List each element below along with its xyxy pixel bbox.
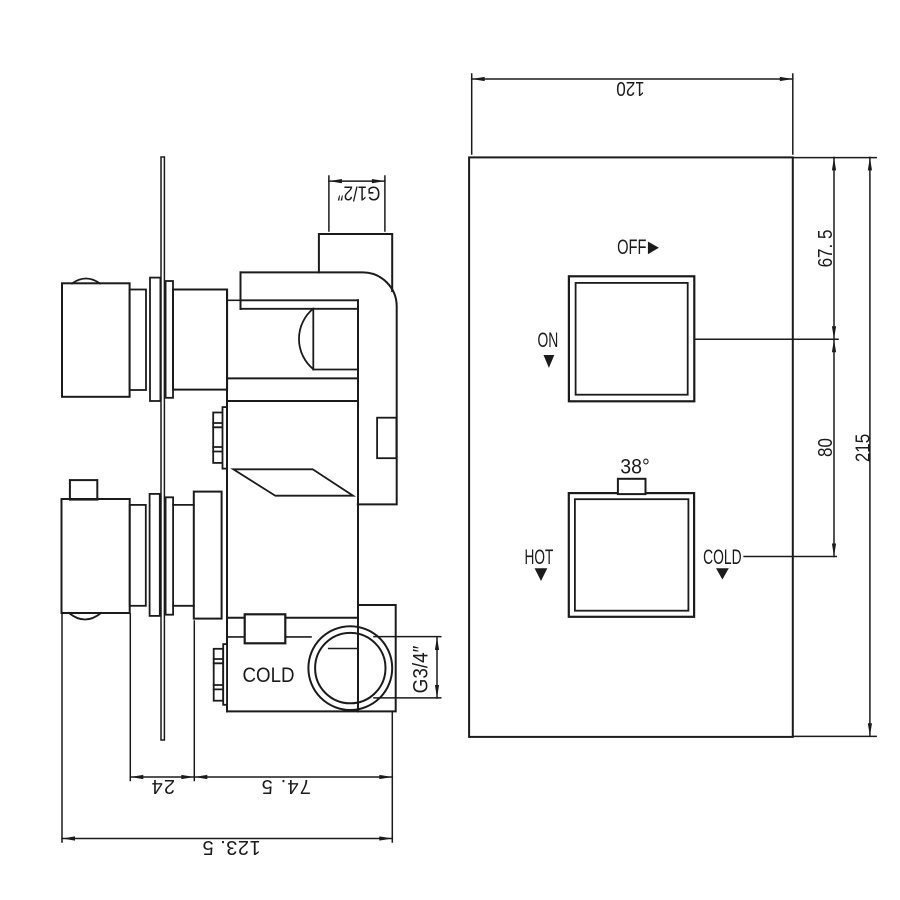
svg-text:120: 120 — [616, 77, 644, 100]
svg-text:67. 5: 67. 5 — [814, 230, 837, 268]
svg-text:38°: 38° — [620, 456, 650, 479]
svg-text:G3/4″: G3/4″ — [410, 646, 433, 694]
svg-text:74. 5: 74. 5 — [260, 775, 310, 797]
svg-text:123. 5: 123. 5 — [202, 836, 261, 858]
svg-text:COLD: COLD — [703, 545, 741, 569]
svg-text:215: 215 — [851, 434, 874, 462]
svg-text:HOT: HOT — [524, 545, 553, 569]
svg-text:G1/2″: G1/2″ — [337, 182, 380, 205]
svg-text:80: 80 — [814, 438, 837, 457]
svg-text:COLD: COLD — [243, 664, 295, 687]
svg-text:ON: ON — [538, 328, 559, 352]
svg-text:24: 24 — [150, 775, 175, 797]
svg-text:OFF: OFF — [617, 236, 646, 259]
